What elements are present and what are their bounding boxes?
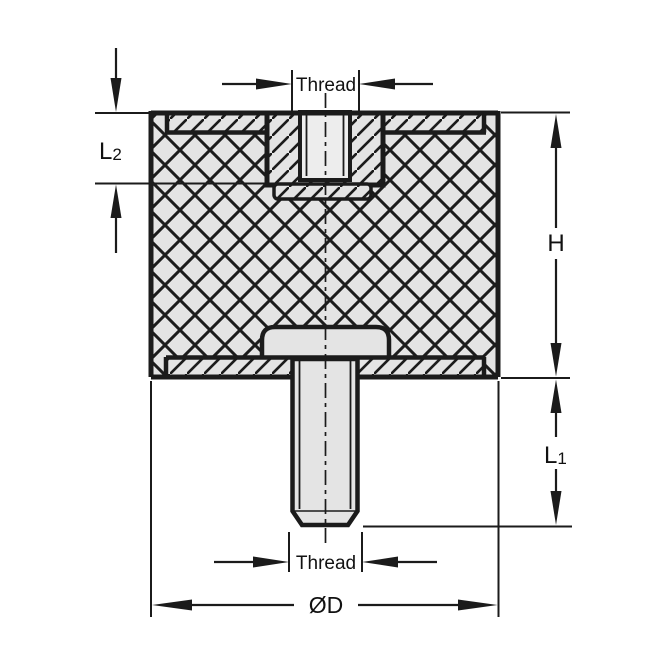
bottom-plate-left bbox=[167, 357, 292, 376]
thread-top-label: Thread bbox=[296, 75, 356, 96]
mount-cross-section-drawing: Thread L2 H L1 Thread ØD bbox=[0, 0, 670, 670]
h-label: H bbox=[547, 230, 564, 257]
thread-bottom-label: Thread bbox=[296, 553, 356, 574]
bottom-plate-right bbox=[358, 357, 484, 376]
technical-drawing-canvas: Thread L2 H L1 Thread ØD bbox=[0, 0, 670, 670]
insert-bottom-flange bbox=[274, 184, 371, 199]
od-label: ØD bbox=[309, 592, 344, 618]
